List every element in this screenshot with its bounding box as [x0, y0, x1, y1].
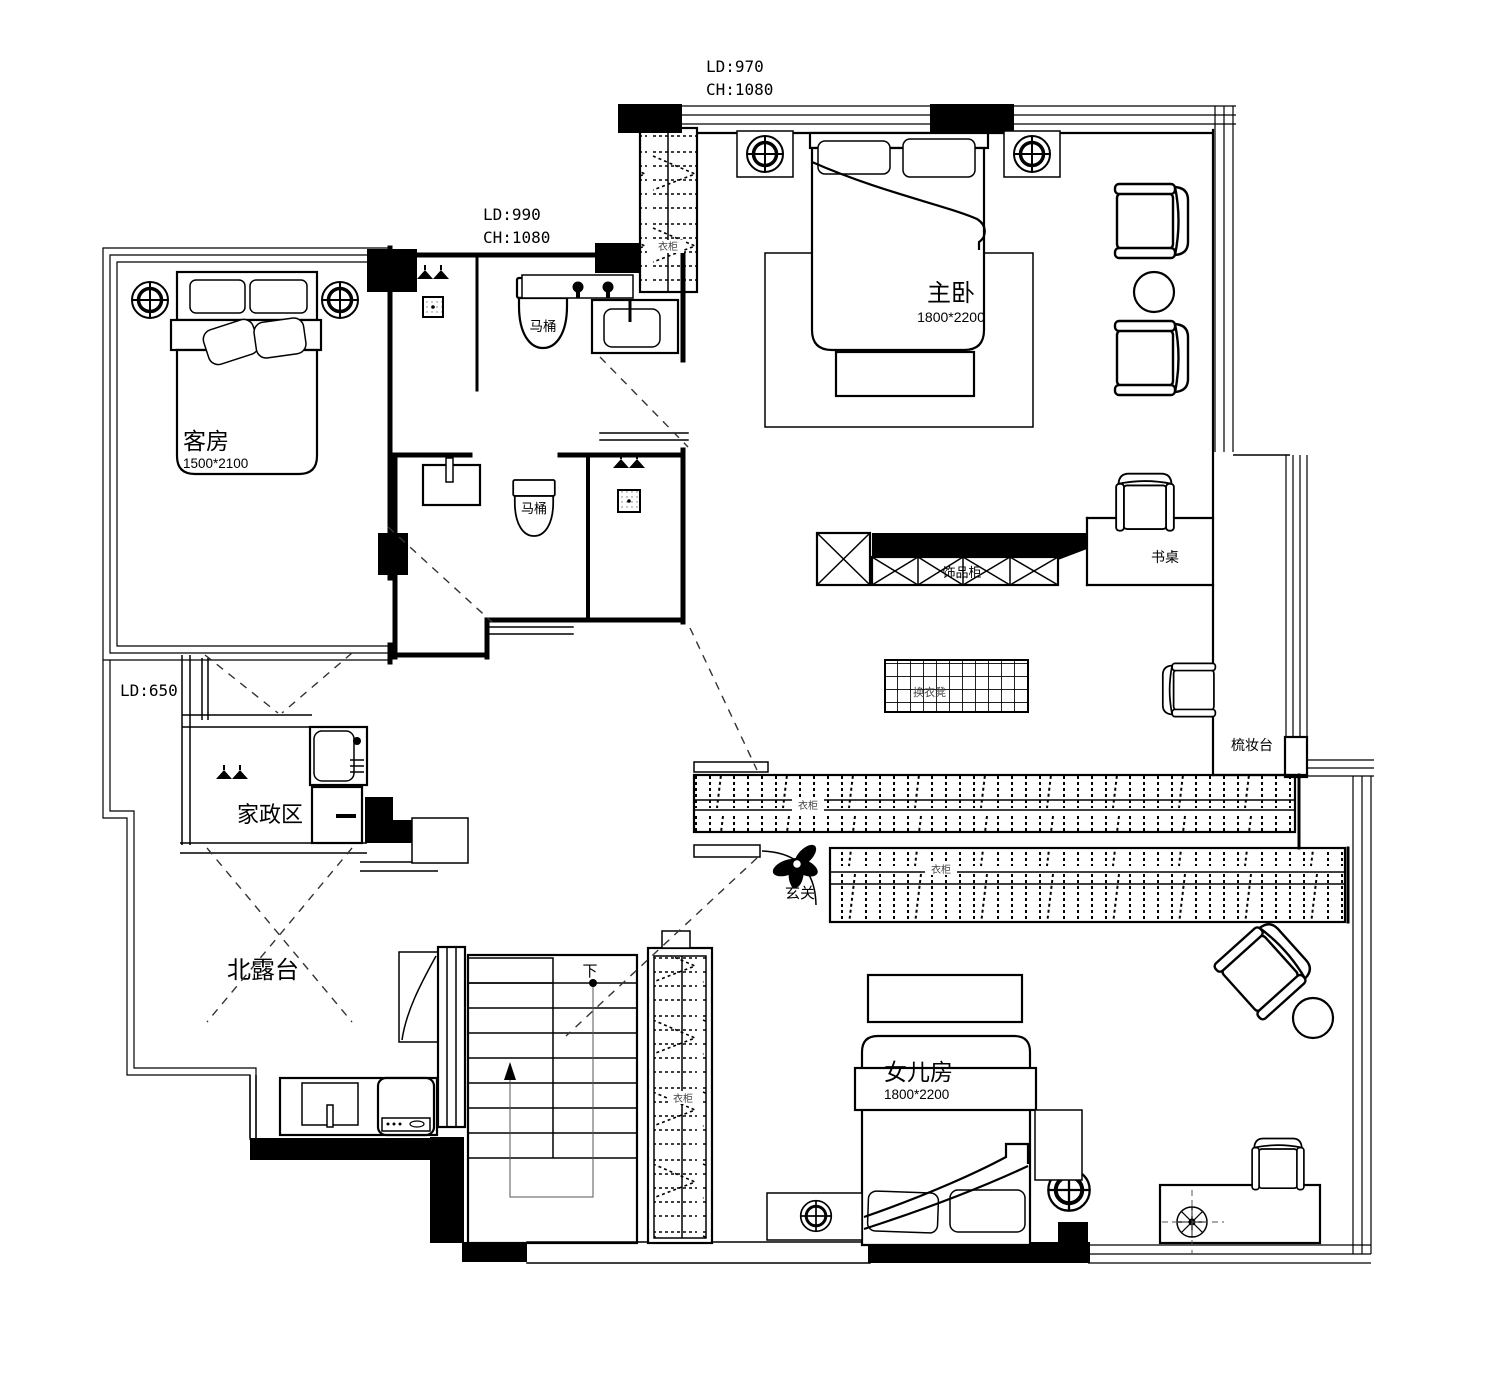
guest-room-label: 客房 [183, 428, 229, 454]
bed-bench [836, 352, 974, 396]
cabinet [412, 818, 468, 863]
dim-mid-ld: LD:990 [483, 205, 541, 224]
toilet-lower-label: 马桶 [521, 501, 547, 516]
rug [868, 975, 1022, 1022]
daughter-room-label: 女儿房 [884, 1059, 953, 1085]
washing-machine [312, 787, 362, 843]
armchair [1115, 184, 1188, 258]
ceiling-lamp-icon [132, 282, 168, 318]
stair-treads [468, 983, 637, 1158]
vanity-chair [1163, 663, 1216, 716]
terrace-door [399, 952, 438, 1042]
dim-top-ld: LD:970 [706, 57, 764, 76]
corridor-closets: 衣柜 衣柜 玄关 [694, 762, 1345, 922]
nightstand [1035, 1110, 1082, 1180]
banister [438, 947, 465, 1127]
wardrobe-strip: 衣柜 [640, 128, 697, 292]
master-room-label: 主卧 [927, 280, 975, 307]
wardrobe-hall-lower: 衣柜 [830, 848, 1345, 922]
sink-lower [423, 458, 480, 505]
armchair [1115, 321, 1188, 395]
window-bottom [1088, 1245, 1371, 1263]
accessory-cabinet-label: 饰品柜 [942, 565, 981, 580]
wardrobe-label: 衣柜 [798, 799, 818, 812]
ceiling-lamp-icon [1014, 136, 1050, 172]
ceiling-lamp-icon [801, 1201, 832, 1232]
wardrobe-strip-label: 衣柜 [658, 240, 678, 253]
changing-bench: 换衣凳 [885, 660, 1028, 712]
wardrobe-label: 衣柜 [931, 863, 951, 876]
guest-room: 客房 1500*2100 [132, 272, 358, 474]
terrace-counter [280, 1078, 437, 1135]
wardrobe-hall-upper: 衣柜 [694, 775, 1295, 832]
toilet-upper-label: 马桶 [530, 319, 557, 334]
side-table [1293, 998, 1333, 1038]
side-table [1134, 272, 1174, 312]
master-room-size: 1800*2200 [917, 309, 985, 325]
laundry-sink [310, 727, 367, 785]
dim-mid-ch: CH:1080 [483, 228, 550, 247]
faucet-symbol-icon [216, 765, 248, 779]
guest-room-size: 1500*2100 [183, 456, 248, 471]
bathroom-upper: 马桶 [417, 265, 678, 353]
daughter-room-size: 1800*2200 [884, 1087, 949, 1102]
wardrobe-stairs: 衣柜 [648, 931, 712, 1243]
shower-head-icon [417, 265, 449, 279]
floor-plan-page: 客房 1500*2100 马桶 衣柜 [0, 0, 1500, 1369]
bathroom-lower: 马桶 [423, 454, 645, 536]
desk-chair [1116, 474, 1174, 531]
housekeeping-label: 家政区 [237, 802, 303, 827]
dressing-area: 饰品柜 书桌 换衣凳 梳妆台 [817, 474, 1273, 753]
plant-icon [770, 841, 820, 888]
small-appliance [378, 1078, 434, 1135]
ceiling-lamp-icon [322, 282, 358, 318]
desk-label: 书桌 [1151, 549, 1179, 565]
direction-arrow-icon [504, 1062, 516, 1080]
terrace: 北露台 [227, 957, 437, 1160]
terrace-label: 北露台 [227, 957, 299, 984]
ceiling-lamp-icon [747, 136, 783, 172]
desk-chair [1252, 1139, 1304, 1190]
wardrobe-label: 衣柜 [673, 1092, 693, 1105]
daughter-room: 女儿房 1800*2200 [767, 917, 1333, 1254]
floor-plan-drawing: 客房 1500*2100 马桶 衣柜 [0, 0, 1500, 1369]
housekeeping-area: 家政区 [180, 655, 468, 871]
window-master-right [1215, 106, 1290, 455]
window-top [622, 106, 1236, 133]
vanity-label: 梳妆台 [1231, 737, 1273, 753]
daughter-desk [1160, 1185, 1320, 1254]
foyer-label: 玄关 [785, 885, 815, 902]
stairs-down-label: 下 [582, 963, 597, 980]
sink-upper [592, 300, 678, 353]
changing-bench-label: 换衣凳 [913, 685, 946, 699]
dim-top-ch: CH:1080 [706, 80, 773, 99]
dim-left-ld: LD:650 [120, 681, 178, 700]
window-vanity-right [1285, 455, 1374, 777]
master-bedroom: 主卧 1800*2200 [737, 131, 1188, 427]
window-daughter-right [1353, 776, 1371, 1254]
daughter-bed: 女儿房 1800*2200 [855, 1036, 1036, 1245]
